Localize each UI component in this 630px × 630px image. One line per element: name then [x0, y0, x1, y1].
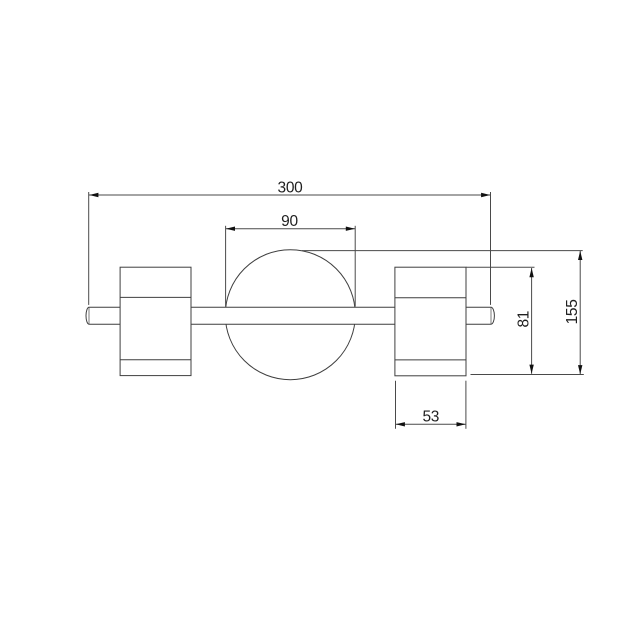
- svg-text:300: 300: [278, 179, 304, 196]
- svg-text:90: 90: [281, 213, 298, 230]
- svg-text:53: 53: [422, 409, 439, 426]
- svg-text:155: 155: [564, 299, 581, 324]
- svg-text:81: 81: [516, 311, 533, 328]
